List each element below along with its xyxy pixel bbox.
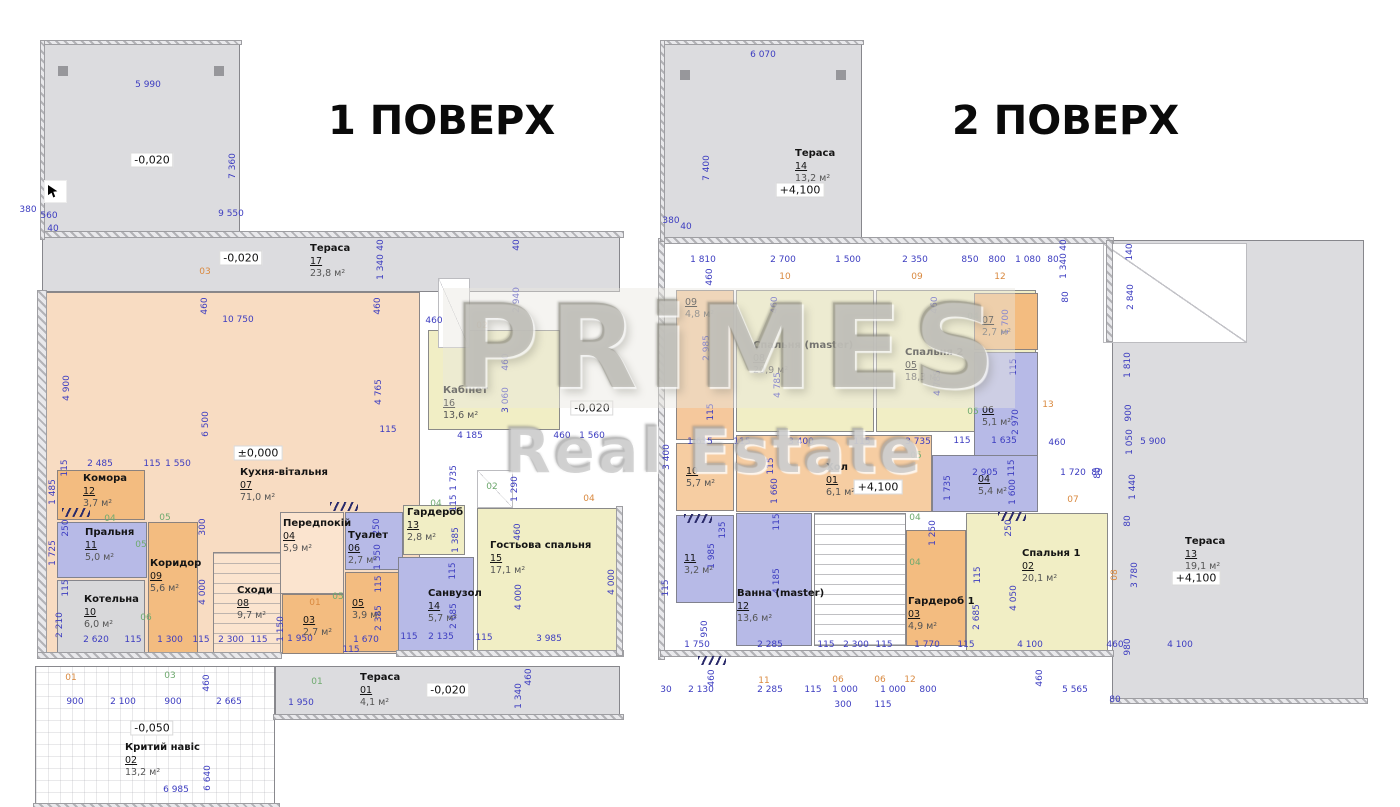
- dimension-label: 115: [61, 579, 71, 596]
- room-name: Тераса: [1185, 536, 1225, 549]
- room-number: 08: [753, 353, 853, 365]
- dimension-label: 40: [680, 222, 691, 232]
- dimension-label: 7 400: [702, 155, 712, 181]
- room-area: 5,4 м²: [978, 486, 1007, 498]
- dimension-label: 460: [1048, 438, 1065, 448]
- room-label-terrace-13: Тераса1319,1 м²: [1185, 536, 1225, 573]
- room-area: 2,7 м²: [982, 327, 1011, 339]
- dimension-label: 1 250: [928, 520, 938, 546]
- dimension-label: 1 485: [48, 479, 58, 505]
- room-area: 6,1 м²: [826, 487, 855, 499]
- dimension-label: 1 725: [48, 540, 58, 566]
- dimension-label: 6 070: [750, 50, 776, 60]
- window-marker: 04: [909, 558, 920, 568]
- dimension-label: 2 210: [55, 612, 65, 638]
- room-label-kitchen-living: Кухня-вітальня0771,0 м²: [240, 467, 328, 504]
- room-area: 4,8 м²: [685, 309, 714, 321]
- dimension-label: 115: [448, 562, 458, 579]
- dimension-label: 115: [853, 437, 870, 447]
- room-area: 17,1 м²: [490, 565, 591, 577]
- dimension-label: 115: [973, 566, 983, 583]
- room-label-boiler-room: Котельна106,0 м²: [84, 594, 139, 631]
- window-marker: 04: [583, 494, 594, 504]
- entry-arrows: [998, 512, 1026, 521]
- dimension-label: 250: [61, 519, 71, 536]
- room-name: Хол: [826, 462, 855, 475]
- dimension-label: 2 840: [1126, 284, 1136, 310]
- dimension-label: 10 750: [222, 315, 254, 325]
- dimension-label: 40: [512, 239, 522, 250]
- room-name: Туалет: [348, 530, 388, 543]
- dimension-label: 1 720: [1060, 468, 1086, 478]
- dimension-label: 1 550: [165, 459, 191, 469]
- room-label-room-06: 065,1 м²: [982, 405, 1011, 429]
- dimension-label: 4 050: [1009, 585, 1019, 611]
- dimension-label: 4 765: [374, 379, 384, 405]
- room-label-hallway: Передпокій045,9 м²: [283, 518, 351, 555]
- window-marker: 12: [994, 272, 1005, 282]
- room-name: Спальня (master): [753, 340, 853, 353]
- dimension-label: 140: [1125, 243, 1135, 260]
- room-area: 5,7 м²: [686, 478, 715, 490]
- room-name: Спальня 1: [1022, 548, 1080, 561]
- dimension-label: 460: [501, 353, 511, 370]
- room-area: 2,8 м²: [407, 532, 463, 544]
- room-number: 14: [428, 601, 482, 613]
- room-label-covered-canopy: Критий навіс0213,2 м²: [125, 742, 200, 779]
- dimension-label: 2 135: [428, 632, 454, 642]
- room-name: Гардероб 1: [908, 596, 975, 609]
- dimension-label: 460: [930, 296, 940, 313]
- dimension-label: 4 900: [62, 375, 72, 401]
- dimension-label: 2 350: [902, 255, 928, 265]
- dimension-label: 380: [19, 205, 36, 215]
- room-number: 12: [83, 486, 127, 498]
- room-number: 02: [125, 755, 200, 767]
- window-marker: 05: [967, 407, 978, 417]
- floor-2-title: 2 ПОВЕРХ: [952, 98, 1179, 144]
- dimension-label: 115: [379, 425, 396, 435]
- wall-segment: [660, 650, 1114, 657]
- room-number: 05: [905, 360, 963, 372]
- dimension-label: 115: [957, 640, 974, 650]
- dimension-label: 1 560: [579, 431, 605, 441]
- dimension-label: 1 340: [376, 254, 386, 280]
- dimension-label: 900: [66, 697, 83, 707]
- dimension-label: 1 670: [353, 635, 379, 645]
- room-label-room-07: 072,7 м²: [982, 315, 1011, 339]
- room-number: 06: [348, 543, 388, 555]
- dimension-label: 115: [706, 403, 716, 420]
- room-name: Санвузол: [428, 588, 482, 601]
- room-area: 3,2 м²: [684, 565, 713, 577]
- dimension-label: 80: [1047, 255, 1058, 265]
- dimension-label: 800: [988, 255, 1005, 265]
- dimension-label: 40: [376, 239, 386, 250]
- room-area: 5,7 м²: [428, 613, 482, 625]
- wall-segment: [40, 40, 242, 45]
- dimension-label: 1 440: [1128, 474, 1138, 500]
- window-marker: 06: [140, 613, 151, 623]
- room-label-bathroom-14: Санвузол145,7 м²: [428, 588, 482, 625]
- dimension-label: 460: [200, 297, 210, 314]
- wall-pier: [214, 66, 224, 76]
- wall-pier: [58, 66, 68, 76]
- dimension-label: 460: [513, 523, 523, 540]
- window-marker: 11: [758, 676, 769, 686]
- level-mark: -0,020: [426, 683, 469, 698]
- room-label-wardrobe-13: Гардероб132,8 м²: [407, 507, 463, 544]
- dimension-label: 900: [1124, 404, 1134, 421]
- room-number: 15: [490, 553, 591, 565]
- room-name: Сходи: [237, 585, 273, 598]
- room-name: Коридор: [150, 558, 201, 571]
- dimension-label: 1 500: [835, 255, 861, 265]
- dimension-label: 1 810: [1123, 352, 1133, 378]
- room-label-master-bath: Ванна (master)1213,6 м²: [737, 588, 824, 625]
- room-area: 4,1 м²: [360, 697, 400, 709]
- room-number: 03: [303, 615, 332, 627]
- dimension-label: 115: [766, 457, 776, 474]
- dimension-label: 3 735: [905, 437, 931, 447]
- room-label-bedroom-1: Спальня 10220,1 м²: [1022, 548, 1080, 585]
- wall-segment: [1110, 698, 1368, 704]
- window-marker: 12: [904, 675, 915, 685]
- room-number: 10: [686, 466, 715, 478]
- room-label-stairs-1: Сходи089,7 м²: [237, 585, 273, 622]
- entry-arrows: [330, 502, 358, 511]
- dimension-label: 950: [700, 620, 710, 637]
- dimension-label: 3 060: [501, 387, 511, 413]
- dimension-label: 115: [124, 635, 141, 645]
- dimension-label: 115: [192, 635, 209, 645]
- dimension-label: 2 485: [87, 459, 113, 469]
- room-label-corridor: Коридор095,6 м²: [150, 558, 201, 595]
- room-label-cabinet: Кабінет1613,6 м²: [443, 385, 488, 422]
- window-marker: 03: [199, 267, 210, 277]
- dimension-label: 5 900: [1140, 437, 1166, 447]
- room-area: 5,6 м²: [150, 583, 201, 595]
- dimension-label: 460: [707, 669, 717, 686]
- dimension-label: 1 750: [684, 640, 710, 650]
- room-number: 09: [150, 571, 201, 583]
- room-number: 13: [407, 520, 463, 532]
- dimension-label: 115: [143, 459, 160, 469]
- room-label-terrace-17: Тераса1723,8 м²: [310, 243, 350, 280]
- wall-segment: [1106, 240, 1113, 342]
- dimension-label: 300: [834, 700, 851, 710]
- dimension-label: 300: [198, 518, 208, 535]
- wall-pier: [680, 70, 690, 80]
- dimension-label: 1 635: [991, 436, 1017, 446]
- dimension-label: 2 940: [512, 287, 522, 313]
- room-area: 6,0 м²: [84, 619, 139, 631]
- room-number: 04: [283, 531, 351, 543]
- window-marker: 09: [911, 272, 922, 282]
- wall-segment: [396, 650, 624, 657]
- dimension-label: 1 300: [157, 635, 183, 645]
- dimension-label: 1 770: [914, 640, 940, 650]
- room-label-terrace-01: Тераса014,1 м²: [360, 672, 400, 709]
- dimension-label: 1 735: [943, 475, 953, 501]
- room-label-master-bedroom: Спальня (master)0820,9 м²: [753, 340, 853, 377]
- room-name: Гостьова спальня: [490, 540, 591, 553]
- dimension-label: 4 100: [1017, 640, 1043, 650]
- dimension-label: 1 150: [276, 616, 286, 642]
- room-number: 06: [982, 405, 1011, 417]
- dimension-label: 560: [40, 211, 57, 221]
- window-marker: 01: [311, 677, 322, 687]
- wall-segment: [40, 40, 45, 240]
- dimension-label: 1 340: [514, 683, 524, 709]
- room-number: 09: [685, 297, 714, 309]
- room-area: 4,9 м²: [908, 621, 975, 633]
- wall-segment: [40, 231, 624, 238]
- dimension-label: 460: [553, 431, 570, 441]
- room-name: Тераса: [310, 243, 350, 256]
- window-marker: 07: [1067, 495, 1078, 505]
- level-mark: -0,020: [130, 153, 173, 168]
- window-marker: 06: [832, 675, 843, 685]
- room-label-room-09: 094,8 м²: [685, 297, 714, 321]
- dimension-label: 1 660: [770, 478, 780, 504]
- room-area: 2,7 м²: [303, 627, 332, 639]
- room-area: 13,6 м²: [737, 613, 824, 625]
- dimension-label: 80: [1123, 515, 1133, 526]
- window-marker: 06: [874, 675, 885, 685]
- dimension-label: 115: [874, 700, 891, 710]
- room-name: Кабінет: [443, 385, 488, 398]
- room-label-hall: Хол016,1 м²: [826, 462, 855, 499]
- room-label-room-05: 053,9 м²: [352, 598, 381, 622]
- room-name: Тераса: [360, 672, 400, 685]
- room-name: Кухня-вітальня: [240, 467, 328, 480]
- room-number: 11: [684, 553, 713, 565]
- dimension-label: 115: [475, 633, 492, 643]
- wall-segment: [616, 506, 623, 656]
- dimension-label: 980: [1123, 638, 1133, 655]
- dimension-label: 115: [875, 640, 892, 650]
- dimension-label: 4 100: [1167, 640, 1193, 650]
- dimension-label: 7 360: [228, 153, 238, 179]
- room-number: 13: [1185, 549, 1225, 561]
- window-marker: 04: [909, 513, 920, 523]
- wall-segment: [273, 714, 624, 720]
- room-number: 17: [310, 256, 350, 268]
- floor-plan-canvas: 1 ПОВЕРХ Тераса1723,8 м²Кухня-вітальня07…: [0, 0, 1400, 807]
- wall-pier: [836, 70, 846, 80]
- room-label-wardrobe-1: Гардероб 1034,9 м²: [908, 596, 975, 633]
- room-name: Котельна: [84, 594, 139, 607]
- dimension-label: 3 780: [1130, 562, 1140, 588]
- dimension-label: 2 285: [757, 640, 783, 650]
- dimension-label: 115: [250, 635, 267, 645]
- room-number: 16: [443, 398, 488, 410]
- dimension-label: 80: [1061, 291, 1071, 302]
- dimension-label: 115: [661, 579, 671, 596]
- room-number: 01: [826, 475, 855, 487]
- room-label-laundry: Пральня115,0 м²: [85, 527, 134, 564]
- dimension-label: 2 700: [770, 255, 796, 265]
- room-area: 13,6 м²: [443, 410, 488, 422]
- dimension-label: 115: [60, 459, 70, 476]
- dimension-label: 380: [662, 216, 679, 226]
- room-number: 03: [908, 609, 975, 621]
- dimension-label: 3 985: [536, 634, 562, 644]
- room-name: Пральня: [85, 527, 134, 540]
- dimension-label: 135: [718, 521, 728, 538]
- window-marker: 01: [309, 598, 320, 608]
- wall-segment: [33, 803, 280, 807]
- dimension-label: 115: [342, 645, 359, 655]
- dimension-label: 2 620: [83, 635, 109, 645]
- room-area: 5,0 м²: [85, 552, 134, 564]
- dimension-label: 460: [705, 268, 715, 285]
- window-marker: 04: [967, 312, 978, 322]
- dimension-label: 1 340: [1059, 253, 1069, 279]
- wall-segment: [660, 40, 864, 45]
- window-marker: 04: [104, 514, 115, 524]
- window-marker: 05: [332, 592, 343, 602]
- window-marker: 01: [65, 673, 76, 683]
- room-area: 71,0 м²: [240, 492, 328, 504]
- room-number: 10: [84, 607, 139, 619]
- dimension-label: 3 400: [788, 437, 814, 447]
- wall-segment: [660, 40, 665, 242]
- room-area: 23,8 м²: [310, 268, 350, 280]
- dimension-label: 1 050: [1125, 429, 1135, 455]
- room-area: 5,9 м²: [283, 543, 351, 555]
- room-number: 04: [978, 474, 1007, 486]
- room-label-room-11: 113,2 м²: [684, 553, 713, 577]
- window-marker: 02: [486, 482, 497, 492]
- roof-area: [438, 278, 470, 348]
- wall-segment: [37, 652, 282, 659]
- wall-segment: [660, 237, 1114, 244]
- room-number: 12: [737, 601, 824, 613]
- dimension-label: 4 185: [457, 431, 483, 441]
- dimension-label: 115: [804, 685, 821, 695]
- room-number: 07: [240, 480, 328, 492]
- dimension-label: 1 080: [1015, 255, 1041, 265]
- level-mark: +4,100: [776, 183, 825, 198]
- level-mark: -0,020: [570, 401, 613, 416]
- dimension-label: 115: [374, 575, 384, 592]
- dimension-label: 115: [400, 632, 417, 642]
- dimension-label: 460: [524, 668, 534, 685]
- dimension-label: 2 285: [757, 685, 783, 695]
- window-marker: 10: [779, 272, 790, 282]
- room-name: Комора: [83, 473, 127, 486]
- dimension-label: 2 300: [218, 635, 244, 645]
- room-area: 20,1 м²: [1022, 573, 1080, 585]
- entry-arrows: [684, 514, 712, 523]
- dimension-label: 80: [1109, 695, 1120, 705]
- room-name: Спальня 2: [905, 347, 963, 360]
- room-number: 11: [85, 540, 134, 552]
- window-marker: 02: [476, 321, 487, 331]
- room-name: Критий навіс: [125, 742, 200, 755]
- room-terrace-14: [662, 42, 862, 242]
- room-label-guest-bedroom: Гостьова спальня1517,1 м²: [490, 540, 591, 577]
- room-number: 02: [1022, 561, 1080, 573]
- dimension-label: 5 565: [1062, 685, 1088, 695]
- room-area: 3,9 м²: [352, 610, 381, 622]
- window-marker: 03: [164, 671, 175, 681]
- room-label-room-04: 045,4 м²: [978, 474, 1007, 498]
- dimension-label: 2 665: [216, 697, 242, 707]
- room-area: 5,1 м²: [982, 417, 1011, 429]
- window-marker: 13: [1042, 400, 1053, 410]
- dimension-label: 1 735: [449, 465, 459, 491]
- dimension-label: 6 500: [201, 411, 211, 437]
- dimension-label: 4 000: [607, 569, 617, 595]
- room-area: 20,9 м²: [753, 365, 853, 377]
- dimension-label: 460: [202, 674, 212, 691]
- dimension-label: 900: [164, 697, 181, 707]
- room-name: Ванна (master): [737, 588, 824, 601]
- cursor-icon: [44, 180, 67, 203]
- dimension-label: 460: [425, 316, 442, 326]
- dimension-label: 6 985: [163, 785, 189, 795]
- window-marker: 05: [910, 451, 921, 461]
- dimension-label: 3 400: [662, 444, 672, 470]
- level-mark: -0,020: [219, 251, 262, 266]
- room-number: 14: [795, 161, 835, 173]
- dimension-label: 115: [817, 640, 834, 650]
- window-marker: 05: [159, 513, 170, 523]
- dimension-label: 115: [772, 513, 782, 530]
- wall-segment: [37, 290, 47, 658]
- room-name: Гардероб: [407, 507, 463, 520]
- dimension-label: 460: [770, 296, 780, 313]
- dimension-label: 30: [660, 685, 671, 695]
- dimension-label: 2 970: [1011, 409, 1021, 435]
- dimension-label: 115: [1007, 459, 1017, 476]
- room-label-toilet: Туалет062,7 м²: [348, 530, 388, 567]
- dimension-label: 80: [1093, 467, 1103, 478]
- room-label-pantry: Комора123,7 м²: [83, 473, 127, 510]
- room-label-terrace-14: Тераса1413,2 м²: [795, 148, 835, 185]
- dimension-label: 115: [733, 437, 750, 447]
- room-label-bedroom-2: Спальня 20518,3 м²: [905, 347, 963, 384]
- room-stairs-2: [814, 513, 906, 646]
- dimension-label: 4 000: [514, 584, 524, 610]
- dimension-label: 1 000: [832, 685, 858, 695]
- room-area: 2,7 м²: [348, 555, 388, 567]
- room-label-room-03: 032,7 м²: [303, 615, 332, 639]
- entry-arrows: [698, 656, 726, 665]
- dimension-label: 2 300: [843, 640, 869, 650]
- dimension-label: 9 550: [218, 209, 244, 219]
- dimension-label: 115: [953, 436, 970, 446]
- room-name: Передпокій: [283, 518, 351, 531]
- room-area: 18,3 м²: [905, 372, 963, 384]
- dimension-label: 1 635: [687, 437, 713, 447]
- level-mark: -0,050: [130, 721, 173, 736]
- entry-arrows: [62, 508, 90, 517]
- room-number: 05: [352, 598, 381, 610]
- dimension-label: 1 810: [690, 255, 716, 265]
- level-mark: +4,100: [854, 480, 903, 495]
- dimension-label: 850: [961, 255, 978, 265]
- window-marker: 08: [1110, 569, 1120, 580]
- dimension-label: 460: [1106, 640, 1123, 650]
- dimension-label: 115: [1009, 358, 1019, 375]
- window-marker: 05: [135, 540, 146, 550]
- level-mark: ±0,000: [234, 446, 283, 461]
- dimension-label: 1 600: [1008, 479, 1018, 505]
